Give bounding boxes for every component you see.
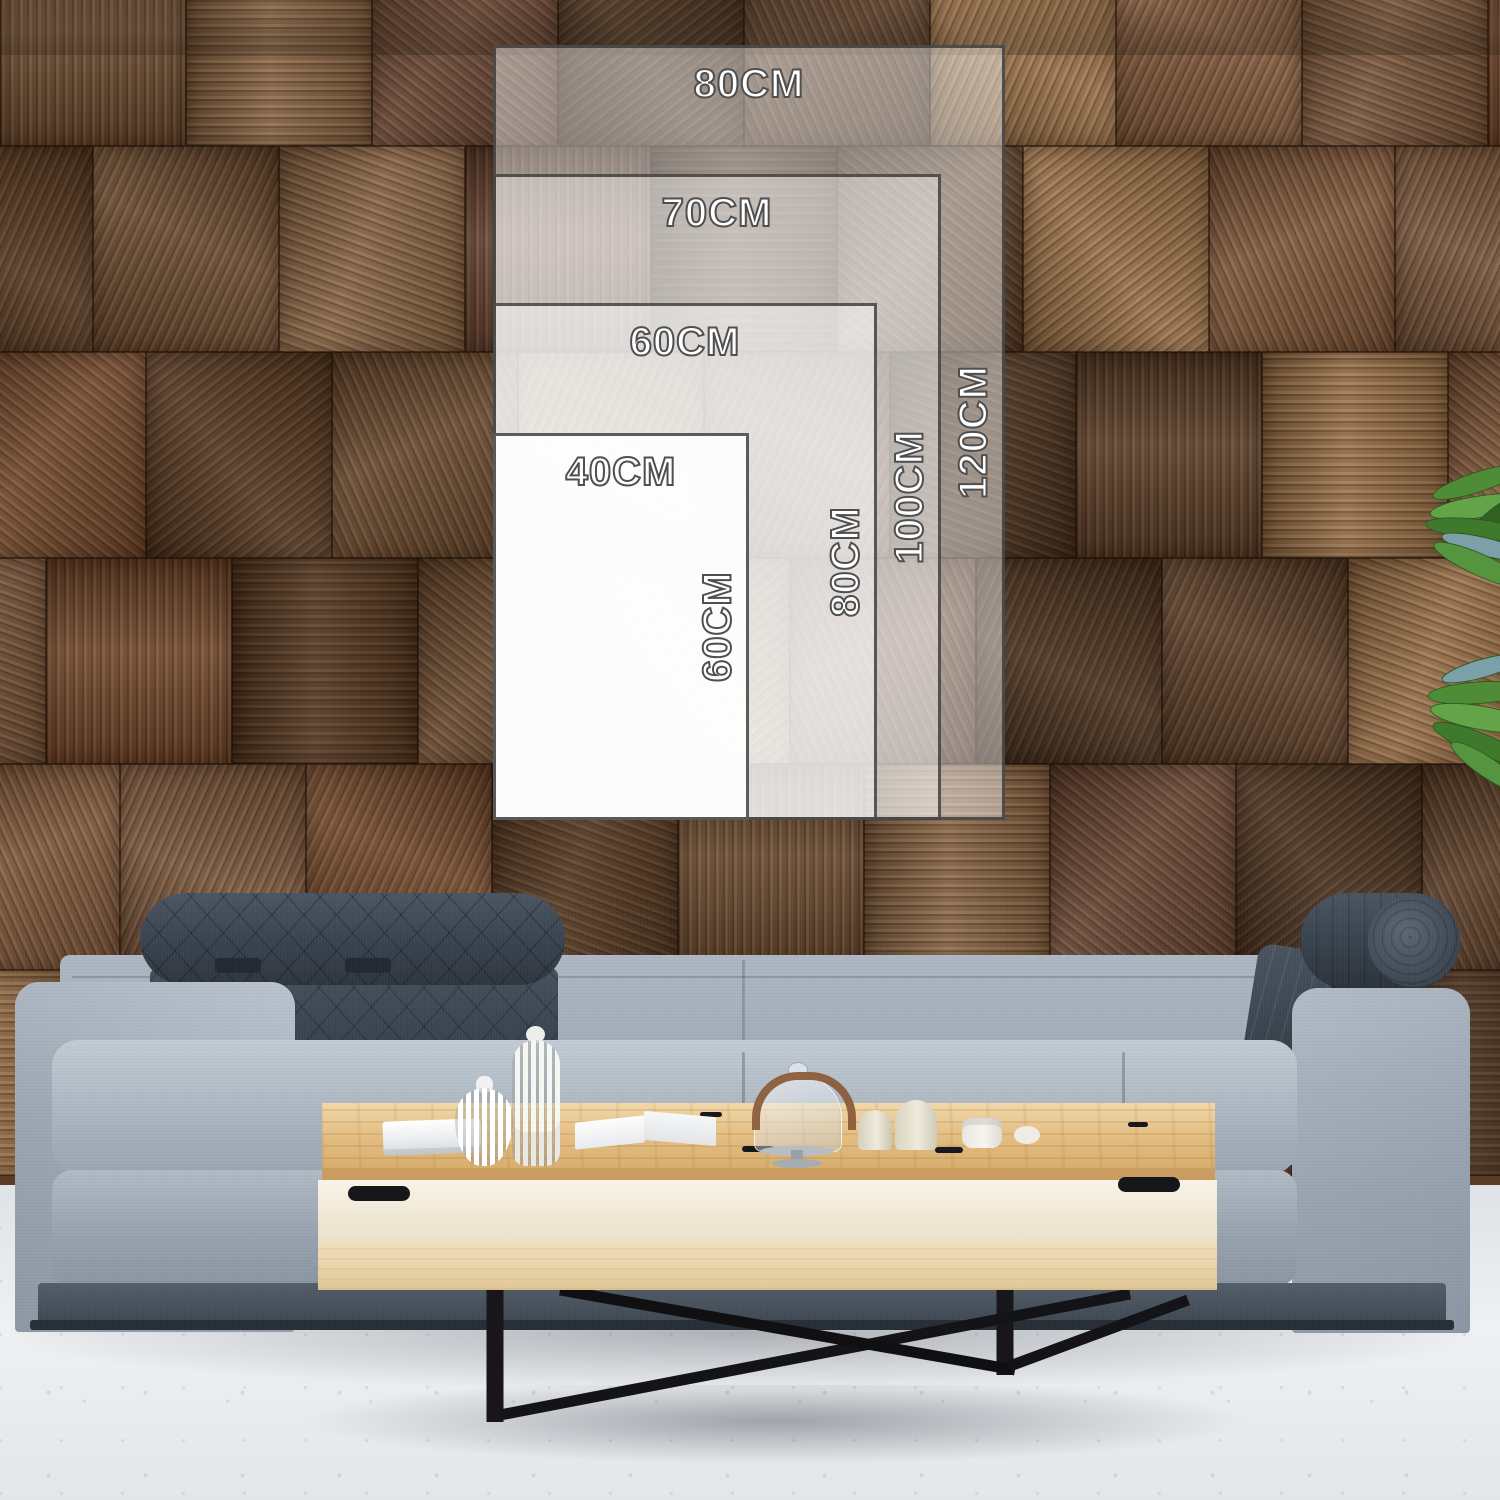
size-width-label: 70CM (496, 191, 938, 236)
scene: 80CM 120CM 70CM 100CM 60CM 80CM 40CM 60C… (0, 0, 1500, 1500)
size-height-label: 100CM (886, 177, 934, 817)
size-width-label: 60CM (496, 320, 874, 365)
size-height-label: 120CM (950, 48, 998, 817)
size-guide-overlay: 80CM 120CM 70CM 100CM 60CM 80CM 40CM 60C… (0, 0, 1500, 1500)
size-width-label: 80CM (496, 62, 1002, 107)
size-height-label: 60CM (694, 436, 742, 817)
size-overlay-40x60: 40CM 60CM (493, 433, 749, 820)
size-height-label: 80CM (822, 306, 870, 817)
